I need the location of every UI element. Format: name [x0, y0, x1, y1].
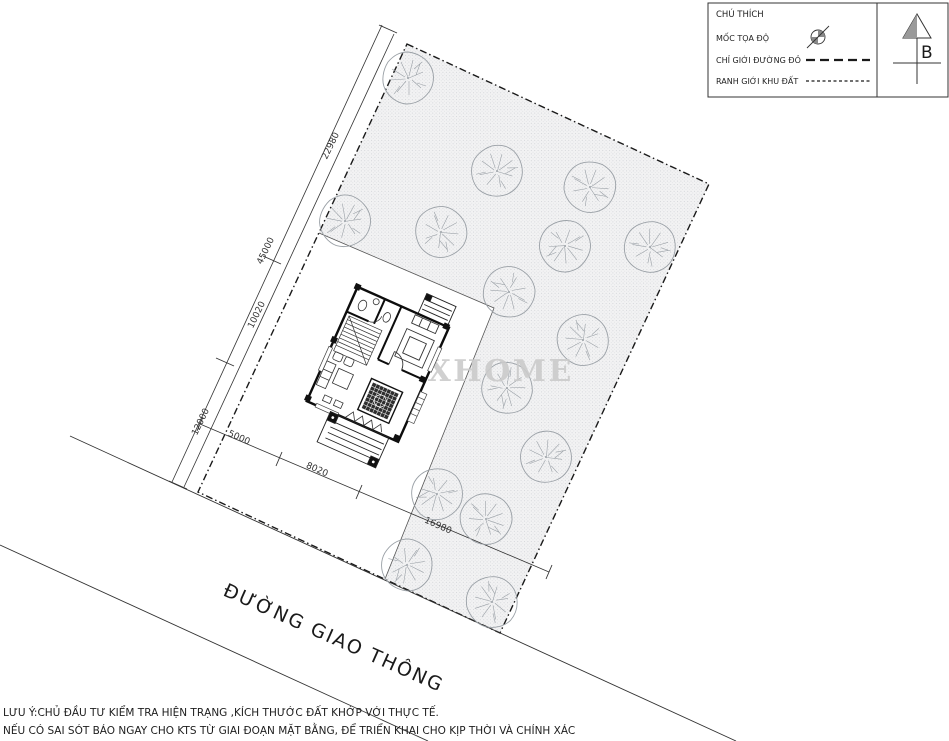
notes: LƯU Ý:CHỦ ĐẦU TƯ KIỂM TRA HIỆN TRẠNG ,KÍ… — [3, 705, 575, 737]
plot-stipple-fill — [198, 44, 709, 633]
legend-title: CHÚ THÍCH — [716, 8, 764, 20]
note-line-2: NẾU CÓ SAI SÓT BÁO NGAY CHO KTS TỪ GIAI … — [3, 723, 575, 737]
dim-left-segment-1: 22980 — [320, 131, 342, 161]
road-lines — [0, 436, 736, 741]
dim-left-total: 45000 — [255, 236, 277, 266]
legend-item-label: RANH GIỚI KHU ĐẤT — [716, 75, 798, 86]
dim-left-segment-2: 10020 — [246, 300, 268, 330]
site-plan-canvas: 22980 45000 10020 12000 5000 8020 16980 — [0, 0, 949, 741]
dim-bottom-segment-1: 5000 — [226, 429, 251, 448]
dim-bottom-segment-2: 8020 — [304, 461, 329, 480]
north-arrow-box: B — [877, 3, 948, 97]
road-label: ĐƯỜNG GIAO THÔNG — [220, 578, 448, 697]
north-label: B — [921, 43, 933, 63]
legend-box: CHÚ THÍCH MỐC TỌA ĐỘ CHỈ GIỚI ĐƯỜNG ĐỎ R… — [708, 3, 877, 97]
plot-area — [198, 44, 709, 633]
note-line-1: LƯU Ý:CHỦ ĐẦU TƯ KIỂM TRA HIỆN TRẠNG ,KÍ… — [3, 705, 439, 719]
site-plan-drawing: 22980 45000 10020 12000 5000 8020 16980 — [0, 0, 949, 741]
legend-item-label: CHỈ GIỚI ĐƯỜNG ĐỎ — [716, 54, 801, 65]
